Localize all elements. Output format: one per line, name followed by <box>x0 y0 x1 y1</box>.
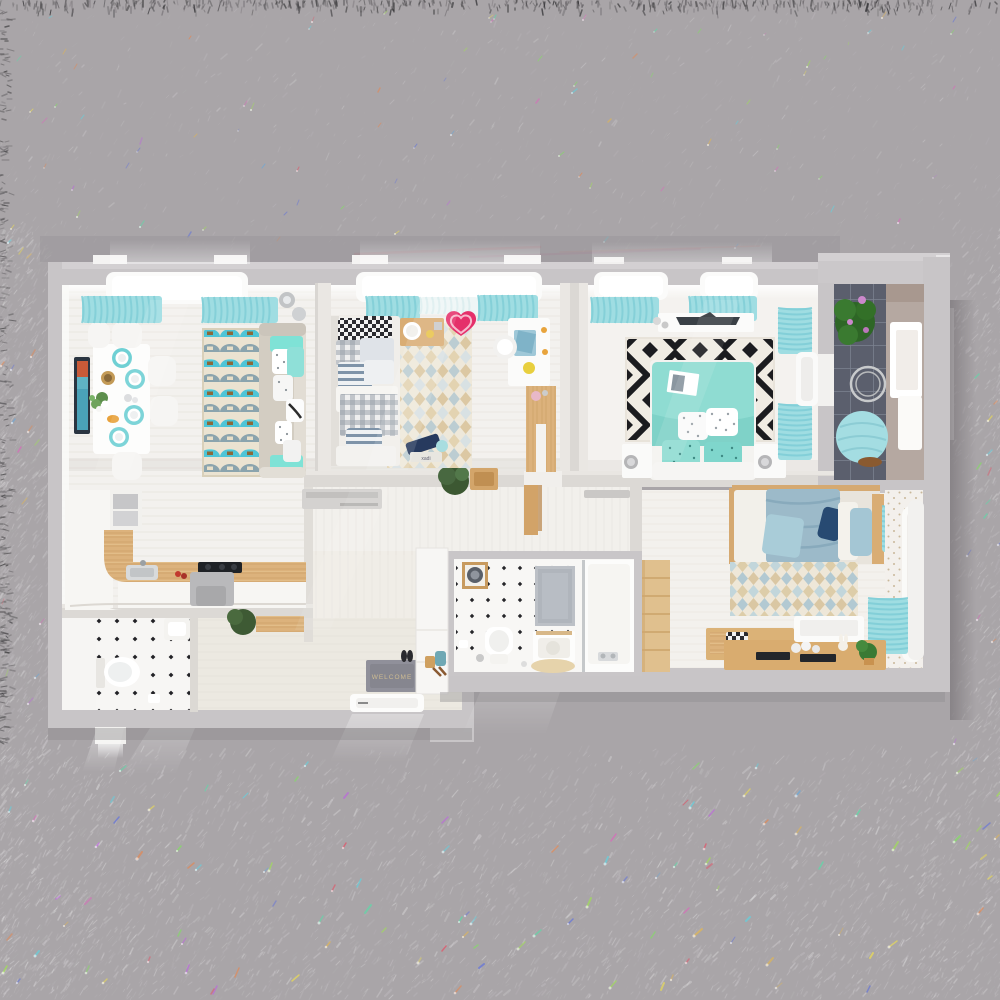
svg-text:xadi: xadi <box>421 456 430 462</box>
svg-text:WELCOME: WELCOME <box>372 674 413 681</box>
